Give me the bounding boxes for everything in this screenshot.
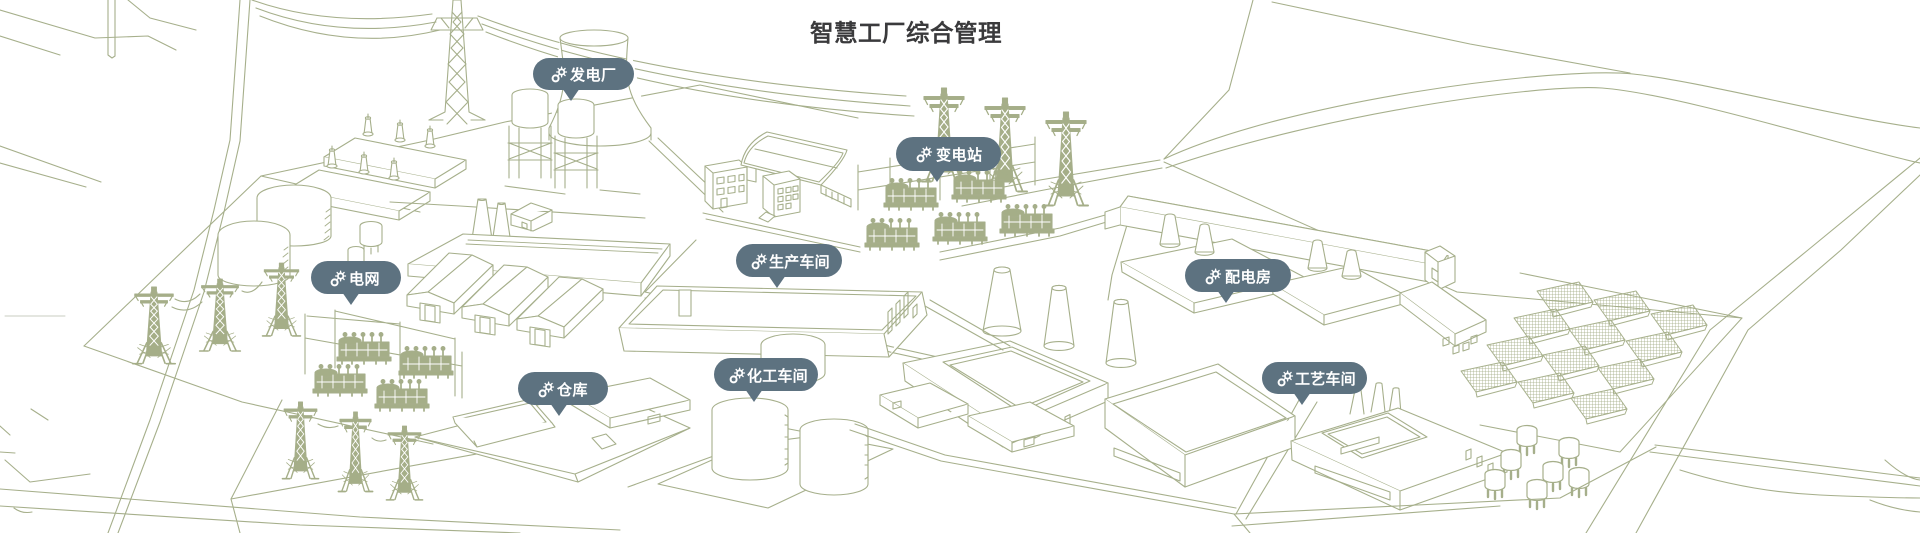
svg-text:智慧工厂综合管理: 智慧工厂综合管理 [810,19,1002,46]
svg-text:电网: 电网 [349,270,380,288]
svg-text:变电站: 变电站 [936,146,983,164]
svg-text:配电房: 配电房 [1225,268,1272,286]
svg-text:化工车间: 化工车间 [747,367,808,385]
svg-text:仓库: 仓库 [556,381,588,399]
svg-text:生产车间: 生产车间 [769,253,830,271]
svg-text:工艺车间: 工艺车间 [1295,370,1356,388]
svg-text:发电厂: 发电厂 [569,66,617,84]
